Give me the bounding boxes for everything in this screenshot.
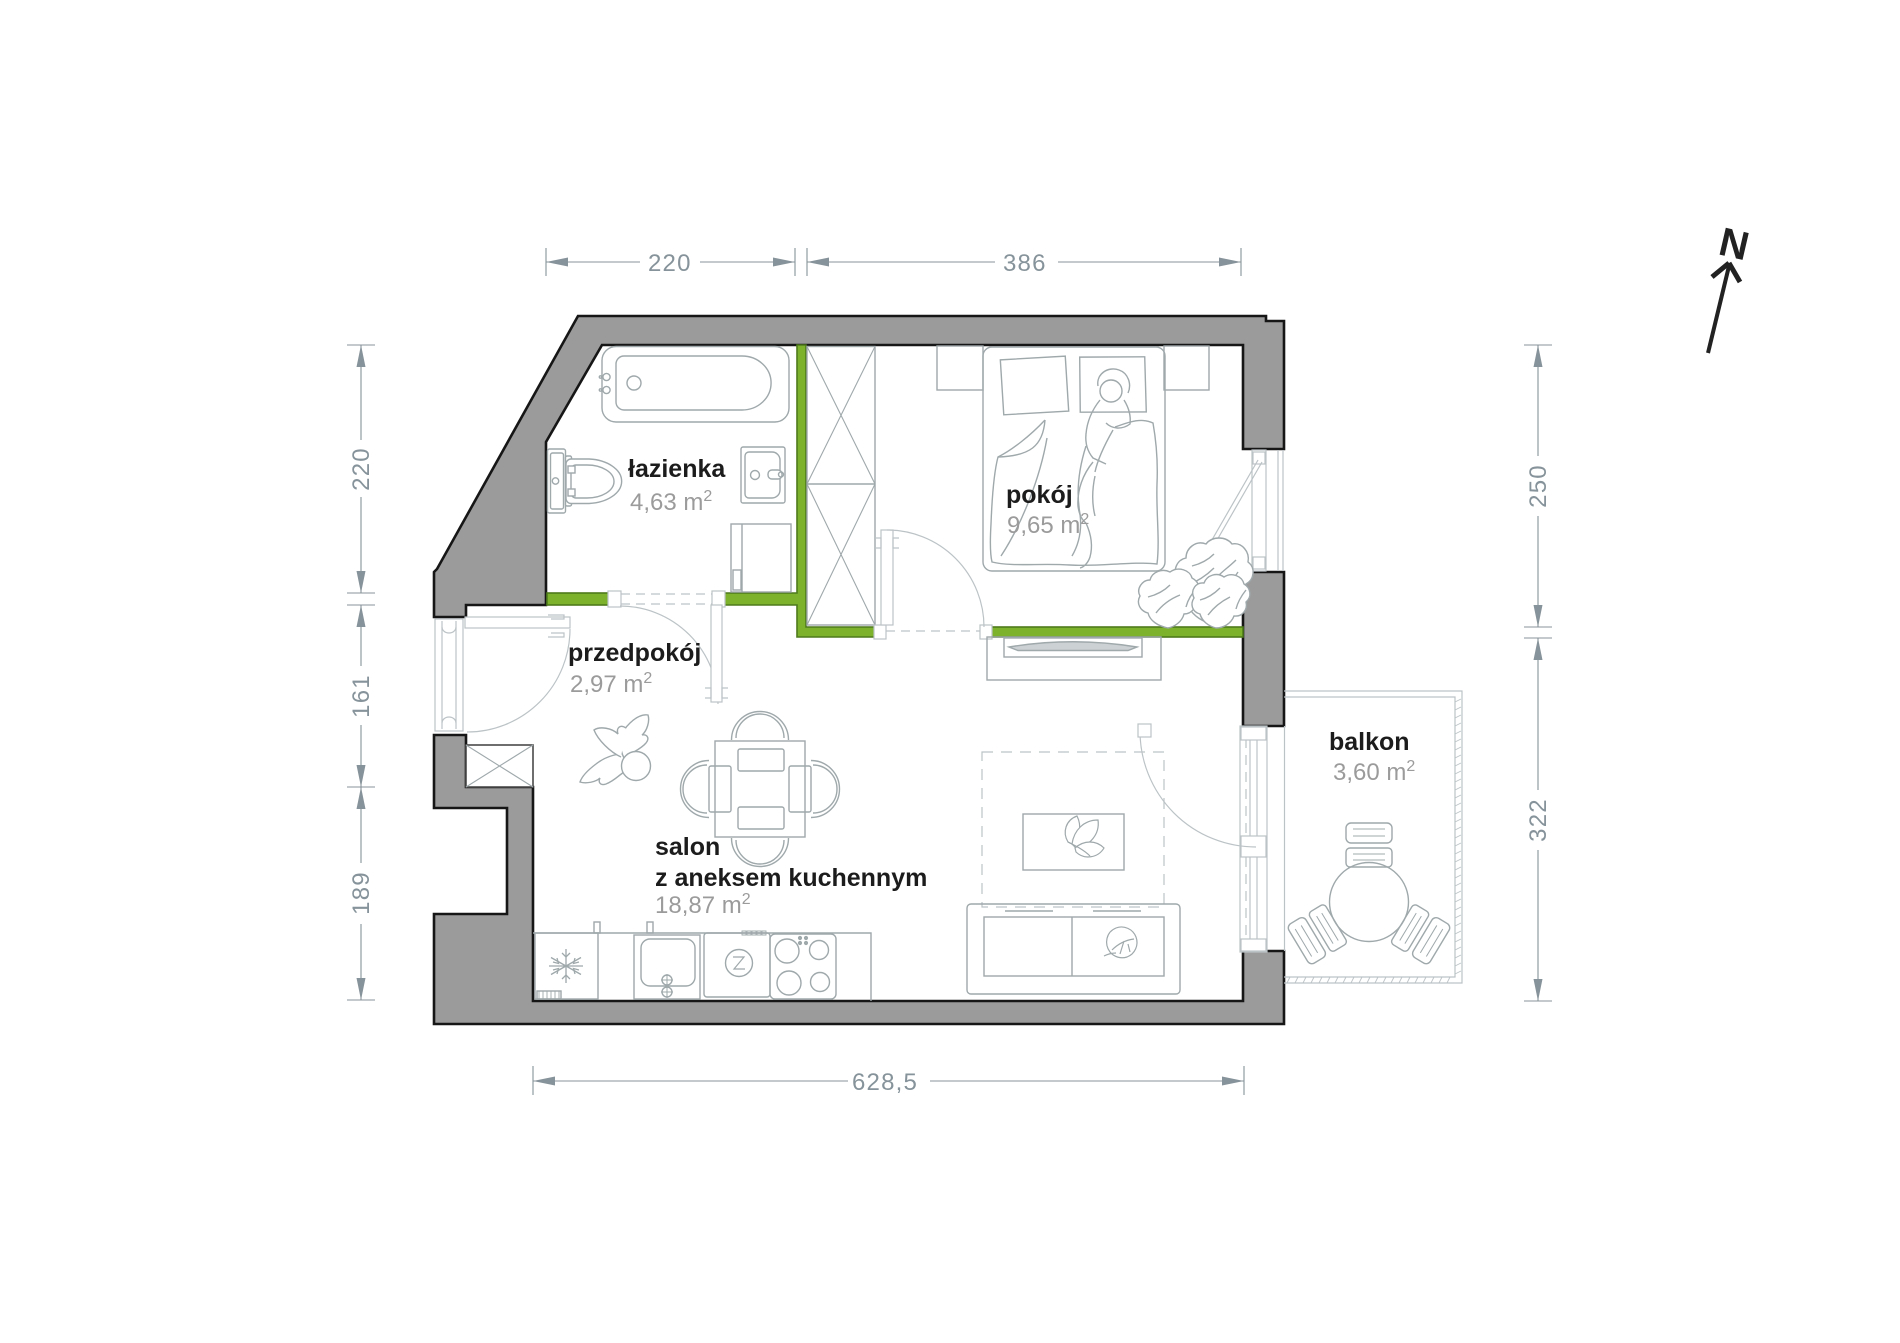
svg-text:przedpokój: przedpokój <box>568 639 701 667</box>
svg-text:4,63 m2: 4,63 m2 <box>630 488 712 516</box>
svg-text:220: 220 <box>348 447 375 491</box>
svg-text:322: 322 <box>1525 798 1552 842</box>
svg-text:628,5: 628,5 <box>852 1069 918 1096</box>
svg-text:220: 220 <box>648 250 692 277</box>
svg-text:balkon: balkon <box>1329 728 1410 756</box>
svg-text:161: 161 <box>348 674 375 718</box>
svg-text:189: 189 <box>348 871 375 915</box>
svg-text:386: 386 <box>1003 250 1047 277</box>
svg-text:łazienka: łazienka <box>628 455 726 483</box>
svg-text:3,60 m2: 3,60 m2 <box>1333 758 1415 786</box>
svg-text:pokój: pokój <box>1006 481 1073 509</box>
svg-text:2,97 m2: 2,97 m2 <box>570 670 652 698</box>
svg-text:9,65 m2: 9,65 m2 <box>1007 511 1089 539</box>
svg-text:250: 250 <box>1525 464 1552 508</box>
svg-text:18,87 m2: 18,87 m2 <box>655 891 751 919</box>
svg-text:salon: salon <box>655 833 720 861</box>
svg-text:z aneksem kuchennym: z aneksem kuchennym <box>655 864 927 892</box>
